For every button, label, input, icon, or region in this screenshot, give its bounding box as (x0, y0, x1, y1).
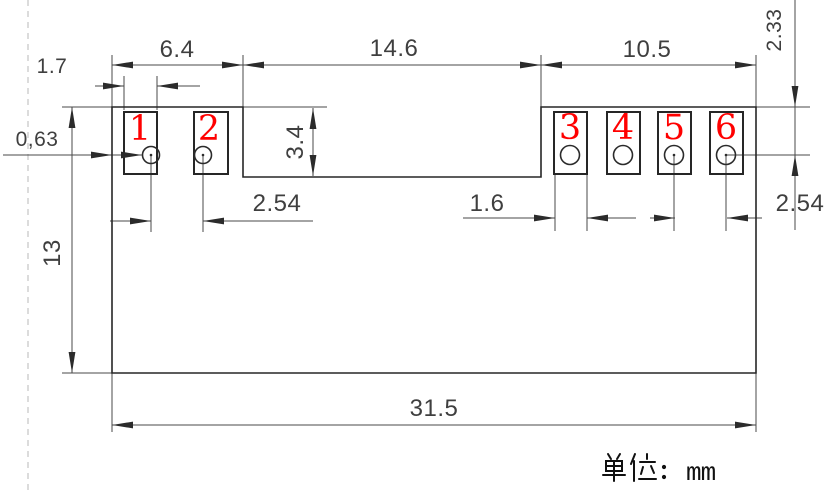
dim-body-width: 31.5 (410, 395, 459, 422)
holes (143, 146, 736, 165)
hole-4 (614, 146, 633, 165)
pad-number-3: 3 (559, 108, 581, 148)
unit-value: mm (686, 458, 716, 488)
cjk-char-dan (603, 454, 625, 481)
pad-number-1: 1 (129, 109, 151, 149)
dim-left-section-width: 6.4 (160, 36, 195, 63)
fullwidth-colon (662, 465, 666, 479)
dim-body-height: 13 (39, 239, 66, 267)
dim-right-pad-width: 1.6 (470, 190, 505, 217)
pad-number-5: 5 (663, 108, 685, 148)
dimension-drawing-page: 6.4 14.6 10.5 1.7 0,63 3.4 13 2.54 1.6 2… (0, 0, 836, 490)
hole-3 (561, 146, 580, 165)
pad-number-2: 2 (198, 109, 220, 149)
dim-left-pad-pitch: 2.54 (253, 190, 302, 217)
dim-middle-section-width: 14.6 (370, 35, 419, 62)
dim-right-section-width: 10.5 (623, 36, 672, 63)
pad-number-6: 6 (715, 108, 737, 148)
dim-right-pad-pitch: 2.54 (776, 190, 825, 217)
cjk-char-wei (631, 454, 656, 481)
dim-notch-depth: 3.4 (282, 125, 309, 160)
dim-top-to-hole-center: 2.33 (763, 9, 786, 52)
pad-number-4: 4 (612, 108, 634, 148)
dim-left-pad-width: 1.7 (37, 55, 68, 78)
dim-edge-to-hole: 0,63 (16, 128, 59, 151)
unit-note: mm (603, 454, 716, 488)
drawing-canvas: 6.4 14.6 10.5 1.7 0,63 3.4 13 2.54 1.6 2… (0, 0, 836, 490)
